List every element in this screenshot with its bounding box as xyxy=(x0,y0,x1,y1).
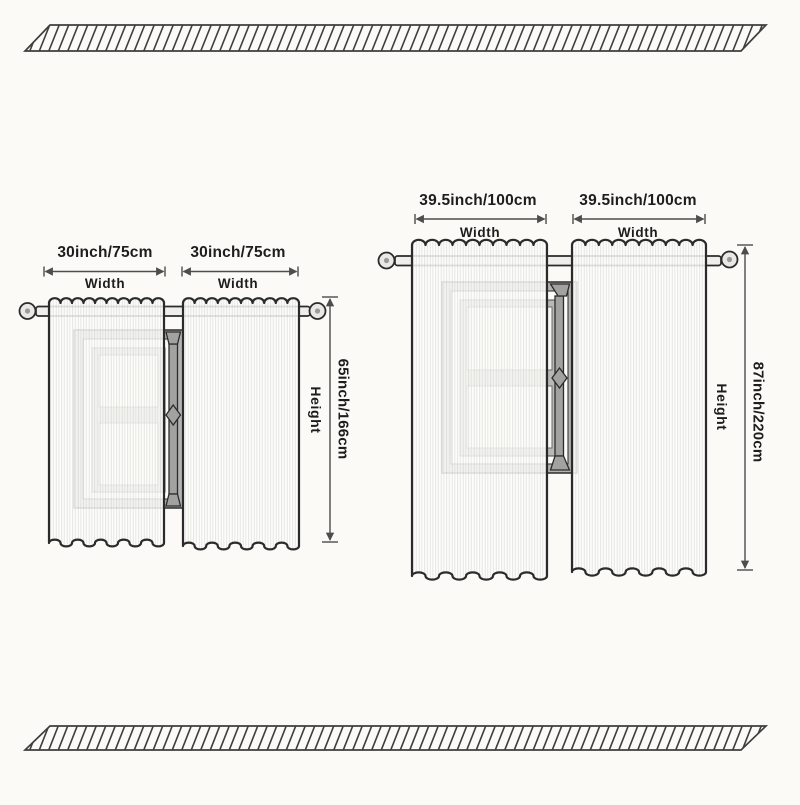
width-caption: Width xyxy=(85,276,125,291)
curtain-panel-left xyxy=(49,298,164,546)
height-caption: Height xyxy=(714,383,730,430)
width-dimension-panel-left xyxy=(415,214,546,224)
curtain-panel-left xyxy=(412,240,547,580)
rod-finial-left-dot xyxy=(384,258,389,263)
width-dimension-panel-right xyxy=(182,267,298,277)
width-dimension-label: 39.5inch/100cm xyxy=(419,192,536,209)
rod-finial-right-dot xyxy=(727,257,732,262)
height-dimension-label: 87inch/220cm xyxy=(750,362,767,463)
rod-finial-right-dot xyxy=(315,308,320,313)
width-caption: Width xyxy=(218,276,258,291)
curtain-diagram-small: 30inch/75cm 30inch/75cm Width Width Heig… xyxy=(20,244,352,549)
curtain-panel-right xyxy=(183,298,299,549)
product-dimension-illustration: 30inch/75cm 30inch/75cm Width Width Heig… xyxy=(0,0,800,800)
width-dimension-label: 39.5inch/100cm xyxy=(579,192,696,209)
height-dimension-label: 65inch/166cm xyxy=(335,359,352,460)
curtain-diagram-large: 39.5inch/100cm 39.5inch/100cm Width Widt… xyxy=(379,192,767,580)
height-caption: Height xyxy=(308,386,324,433)
diagram-canvas: 30inch/75cm 30inch/75cm Width Width Heig… xyxy=(0,0,800,800)
width-dimension-label: 30inch/75cm xyxy=(190,244,285,261)
width-caption: Width xyxy=(618,225,658,240)
width-caption: Width xyxy=(460,225,500,240)
width-dimension-panel-right xyxy=(573,214,705,224)
top-hatch-border xyxy=(25,25,766,51)
rod-finial-left-dot xyxy=(25,308,30,313)
width-dimension-label: 30inch/75cm xyxy=(57,244,152,261)
curtain-panel-right xyxy=(572,240,706,576)
bottom-hatch-border xyxy=(25,726,766,750)
width-dimension-panel-left xyxy=(44,267,165,277)
